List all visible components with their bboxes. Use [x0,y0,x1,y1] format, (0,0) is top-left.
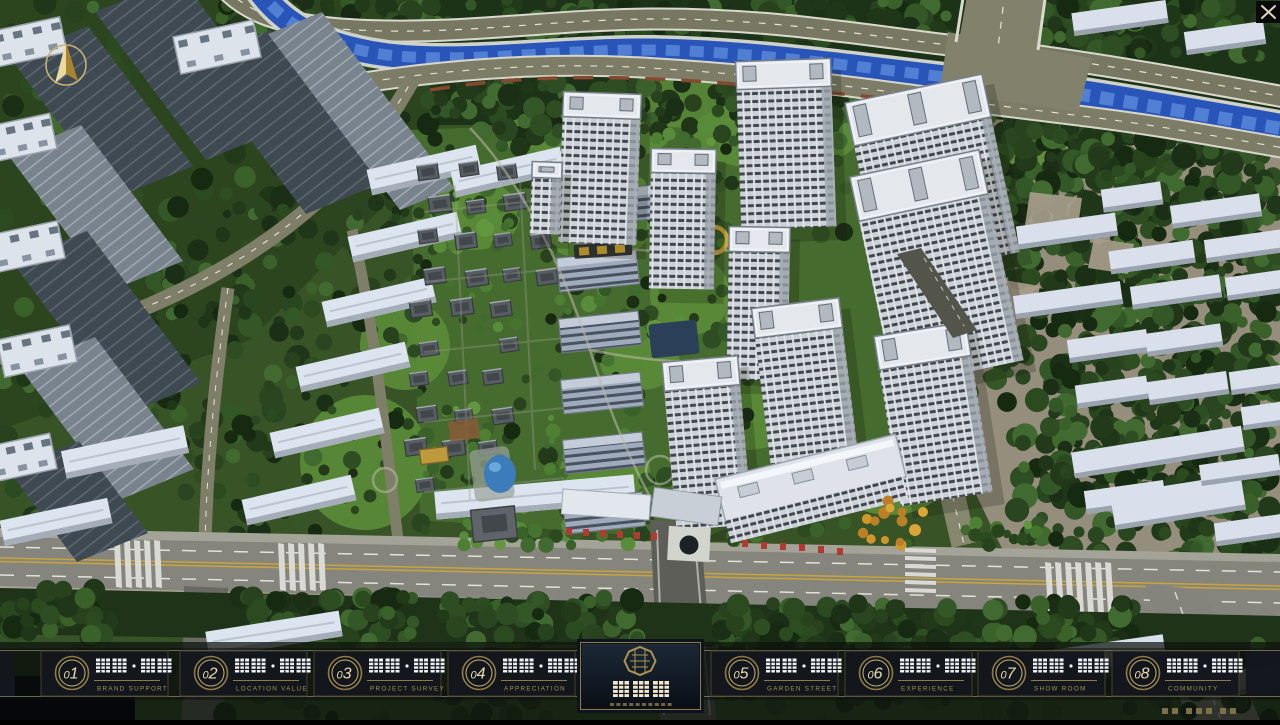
svg-text:PROJECT SURVEY: PROJECT SURVEY [370,686,445,693]
svg-text:COMMUNITY: COMMUNITY [1168,686,1219,693]
svg-text:LOCATION VALUE: LOCATION VALUE [236,686,308,693]
svg-text:BRAND SUPPORT: BRAND SUPPORT [97,686,168,693]
svg-text:GARDEN STREET: GARDEN STREET [767,686,837,693]
svg-text:SHOW ROOM: SHOW ROOM [1034,686,1087,693]
svg-text:APPRECIATION: APPRECIATION [504,686,566,693]
svg-text:EXPERIENCE: EXPERIENCE [901,686,955,693]
